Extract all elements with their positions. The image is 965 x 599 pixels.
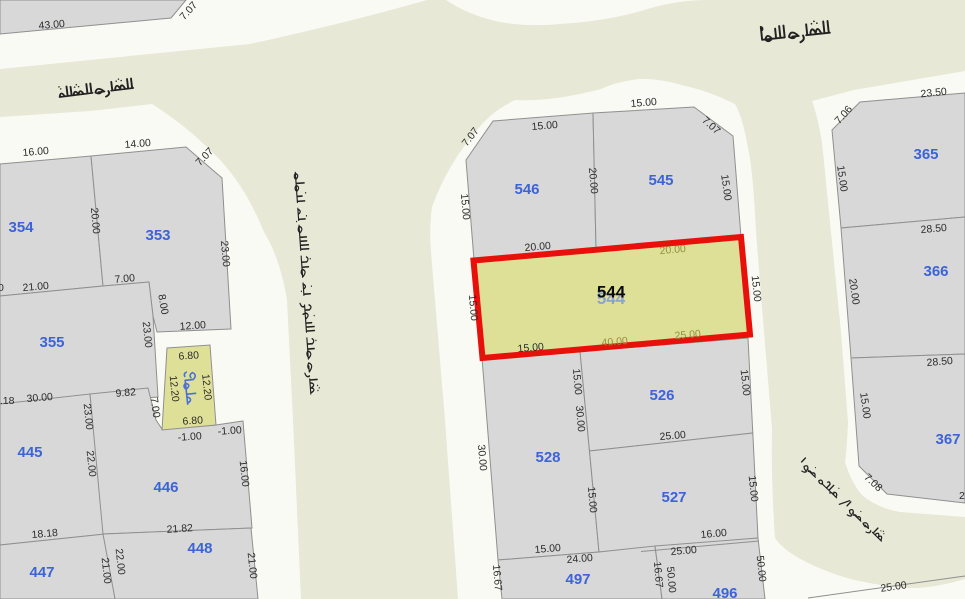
svg-text:25.00: 25.00 xyxy=(674,328,701,342)
svg-text:447: 447 xyxy=(29,564,54,581)
svg-text:30.00: 30.00 xyxy=(475,444,489,471)
svg-text:354: 354 xyxy=(8,219,34,236)
svg-text:23.00: 23.00 xyxy=(218,240,232,267)
svg-text:544: 544 xyxy=(597,283,626,302)
svg-text:25.00: 25.00 xyxy=(670,544,697,558)
svg-text:7.00: 7.00 xyxy=(114,272,136,286)
svg-text:15.00: 15.00 xyxy=(458,193,472,220)
svg-text:30.00: 30.00 xyxy=(573,405,587,432)
svg-text:25.00: 25.00 xyxy=(659,429,686,443)
svg-text:448: 448 xyxy=(187,540,212,557)
svg-text:14.00: 14.00 xyxy=(124,137,151,151)
svg-text:545: 545 xyxy=(648,172,673,189)
svg-text:15.00: 15.00 xyxy=(466,294,480,321)
svg-text:0: 0 xyxy=(0,282,4,294)
svg-text:15.00: 15.00 xyxy=(531,119,558,133)
svg-text:365: 365 xyxy=(913,146,938,163)
svg-text:355: 355 xyxy=(39,334,64,351)
svg-text:527: 527 xyxy=(661,489,686,506)
svg-text:20.00: 20.00 xyxy=(88,207,102,234)
svg-text:40.00: 40.00 xyxy=(601,335,628,349)
svg-text:15.00: 15.00 xyxy=(630,96,657,110)
svg-text:12.00: 12.00 xyxy=(179,319,206,333)
svg-text:21.82: 21.82 xyxy=(166,522,193,536)
svg-text:367: 367 xyxy=(935,431,960,448)
svg-text:2: 2 xyxy=(959,490,965,502)
svg-text:18.18: 18.18 xyxy=(31,527,58,541)
svg-text:21.00: 21.00 xyxy=(22,280,49,294)
svg-text:15.00: 15.00 xyxy=(534,542,561,556)
svg-text:16.67: 16.67 xyxy=(651,561,665,588)
svg-text:20.00: 20.00 xyxy=(659,243,686,257)
svg-text:43.00: 43.00 xyxy=(38,18,65,32)
svg-text:30.00: 30.00 xyxy=(26,391,53,405)
svg-text:446: 446 xyxy=(153,479,178,496)
svg-text:445: 445 xyxy=(17,444,42,461)
svg-text:20.00: 20.00 xyxy=(586,167,600,194)
svg-text:546: 546 xyxy=(514,181,539,198)
svg-text:24.00: 24.00 xyxy=(566,552,593,566)
svg-text:15.00: 15.00 xyxy=(517,341,544,355)
svg-text:-1.00: -1.00 xyxy=(177,430,202,444)
svg-text:16.67: 16.67 xyxy=(490,564,504,591)
svg-text:15.00: 15.00 xyxy=(570,368,584,395)
svg-text:28.50: 28.50 xyxy=(926,355,953,369)
svg-text:353: 353 xyxy=(145,227,170,244)
svg-text:526: 526 xyxy=(649,387,674,404)
svg-text:528: 528 xyxy=(535,449,560,466)
svg-text:6.80: 6.80 xyxy=(178,349,199,362)
svg-text:50.00: 50.00 xyxy=(664,566,678,593)
svg-text:28.50: 28.50 xyxy=(920,222,947,236)
svg-text:496: 496 xyxy=(712,585,737,599)
svg-text:366: 366 xyxy=(923,263,948,280)
svg-text:8.18: 8.18 xyxy=(0,395,15,407)
svg-text:20.00: 20.00 xyxy=(524,240,551,254)
svg-text:-1.00: -1.00 xyxy=(217,424,242,438)
svg-text:16.00: 16.00 xyxy=(22,145,49,159)
svg-text:9.82: 9.82 xyxy=(115,386,137,400)
svg-text:15.00: 15.00 xyxy=(585,486,599,513)
svg-text:6.80: 6.80 xyxy=(182,414,203,427)
svg-text:497: 497 xyxy=(565,571,590,588)
svg-text:16.00: 16.00 xyxy=(700,527,727,541)
